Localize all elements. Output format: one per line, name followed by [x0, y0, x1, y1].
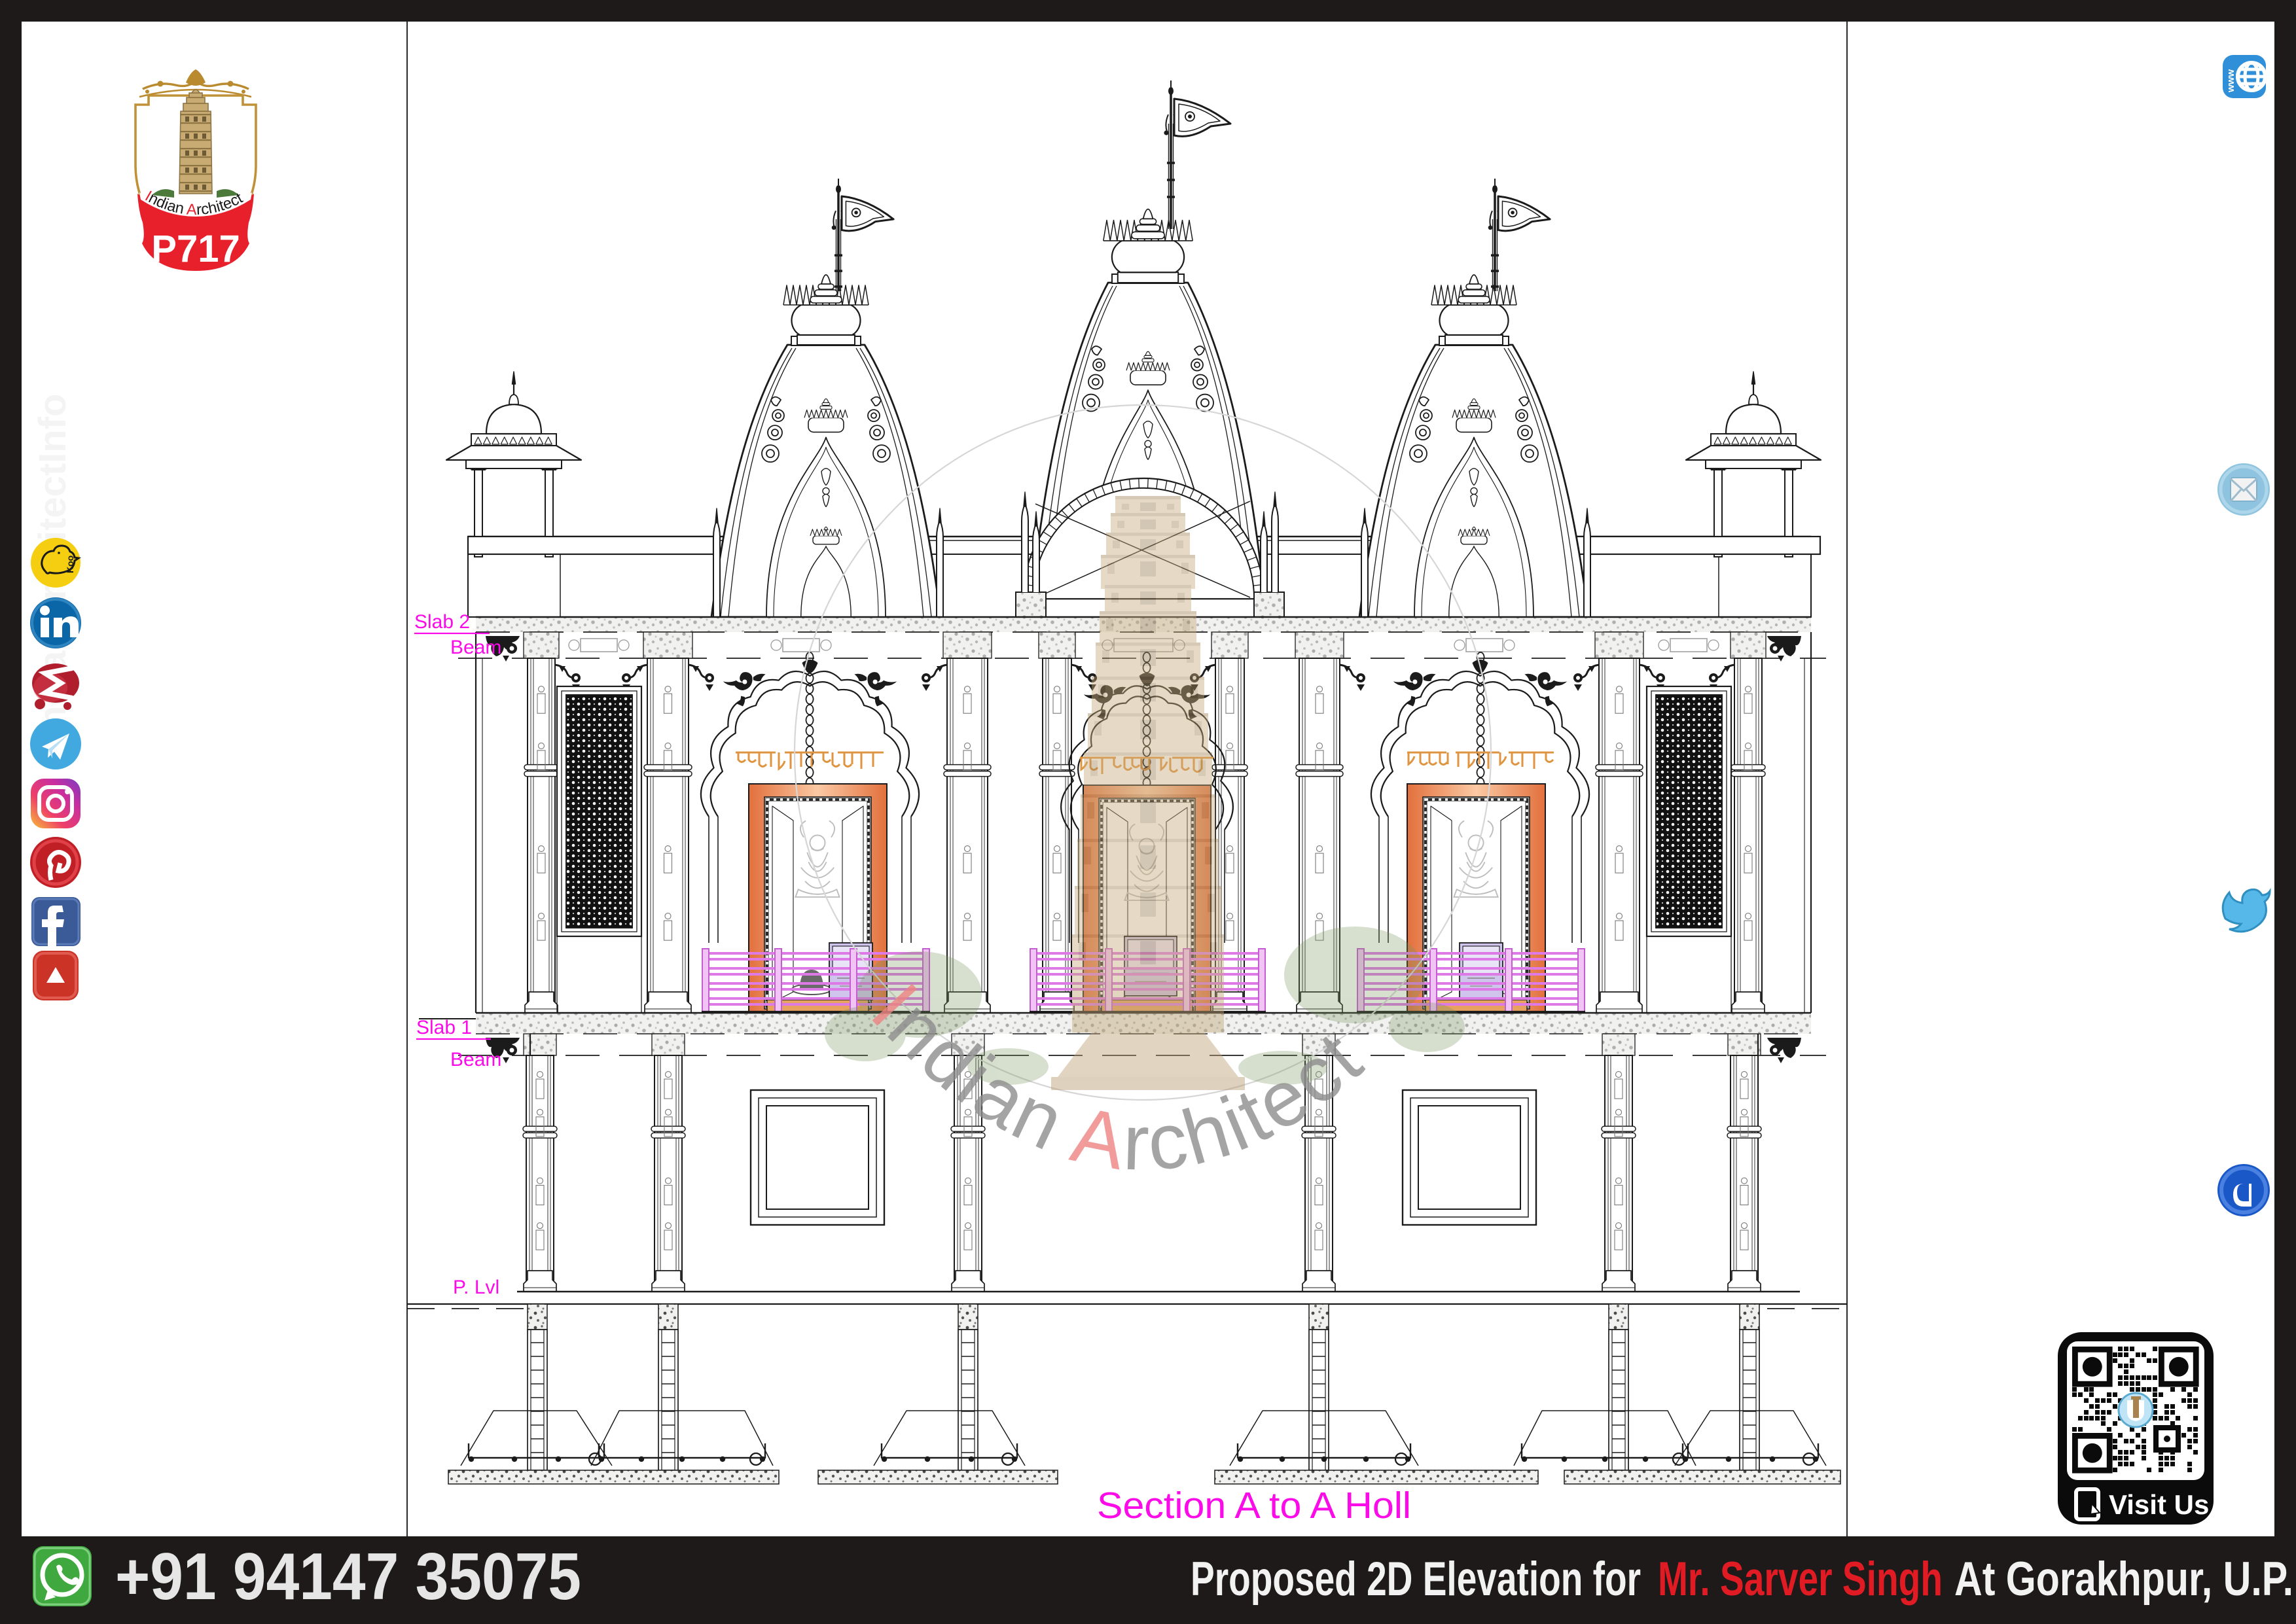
- svg-text:Section A to A Holl: Section A to A Holl: [1097, 1485, 1411, 1527]
- svg-text:P. Lvl: P. Lvl: [453, 1277, 499, 1298]
- svg-text:Beam: Beam: [450, 637, 501, 658]
- svg-text:www: www: [2225, 69, 2236, 93]
- svg-text:P717: P717: [151, 228, 240, 270]
- svg-text:Slab 2: Slab 2: [414, 611, 470, 633]
- svg-text:+91 94147 35075: +91 94147 35075: [115, 1540, 581, 1614]
- svg-text:Mr. Sarver Singh: Mr. Sarver Singh: [1658, 1553, 1943, 1606]
- svg-text:At Gorakhpur, U.P.: At Gorakhpur, U.P.: [1954, 1553, 2293, 1606]
- svg-text:Beam: Beam: [450, 1049, 501, 1070]
- svg-text:Slab 1: Slab 1: [416, 1017, 472, 1038]
- svg-text:Visit Us: Visit Us: [2109, 1489, 2209, 1520]
- svg-text:Koo: Koo: [65, 556, 75, 573]
- svg-text:Proposed 2D Elevation for: Proposed 2D Elevation for: [1191, 1553, 1641, 1606]
